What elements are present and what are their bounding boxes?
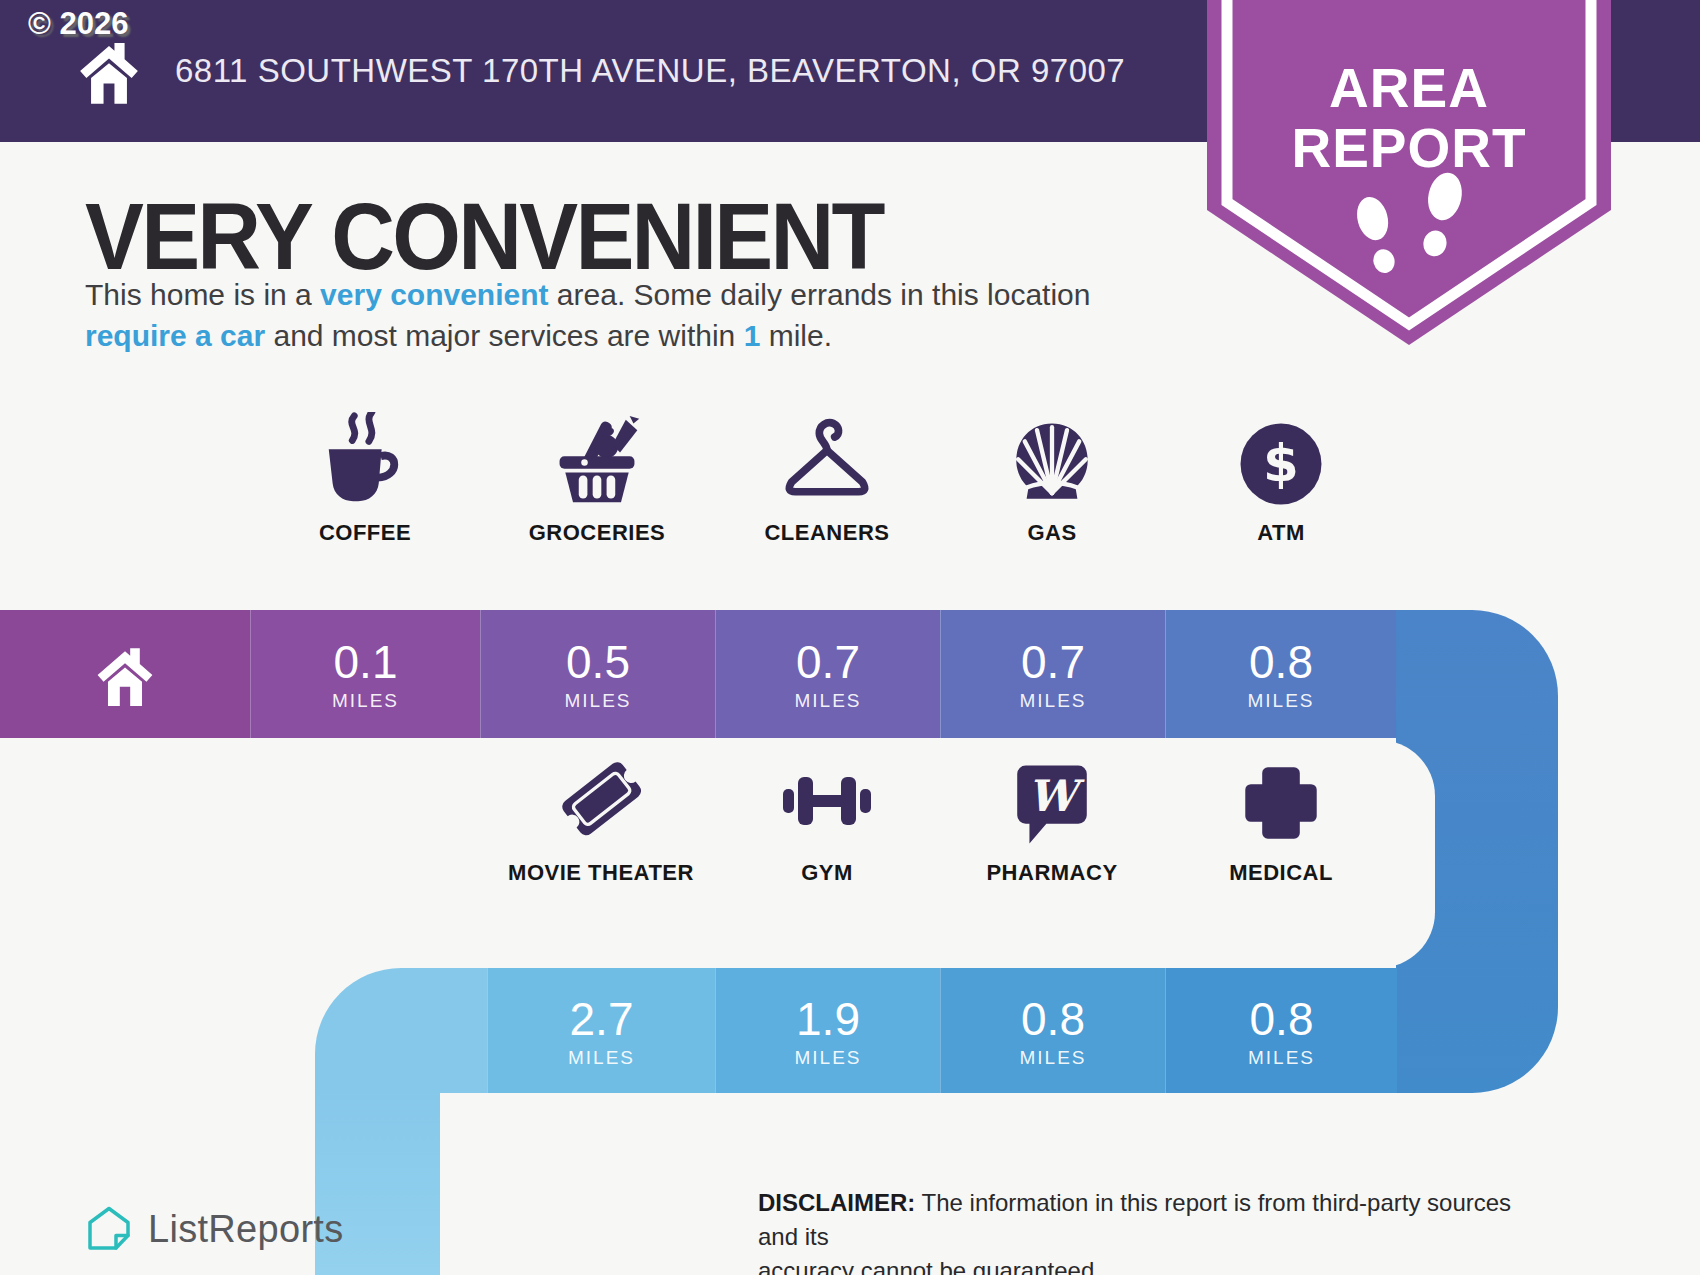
svg-text:$: $ [1263,433,1299,493]
svg-text:W: W [1028,770,1085,821]
area-report-badge: AREA REPORT [1207,0,1611,348]
home-segment [0,610,250,738]
distance-segment-movie-theater: 2.7MILES [487,968,715,1093]
poi-coffee: COFFEE [245,402,485,546]
highlight-very-convenient: very convenient [320,278,548,311]
poi-label: COFFEE [319,520,411,546]
dumbbell-icon [777,742,877,850]
poi-gas: GAS [932,402,1172,546]
distance-segment-coffee: 0.1MILES [250,610,480,738]
poi-label: ATM [1257,520,1305,546]
distance-bar-row2: 2.7MILES 1.9MILES 0.8MILES 0.8MILES [315,968,1558,1093]
turn-segment [315,968,487,1093]
poi-label: GAS [1027,520,1076,546]
poi-label: GYM [801,860,853,886]
highlight-require-a-car: require a car [85,319,265,352]
distance-bar-row1: 0.1MILES 0.5MILES 0.7MILES 0.7MILES 0.8M… [0,610,1396,738]
poi-label: MOVIE THEATER [508,860,694,886]
distance-segment-groceries: 0.5MILES [480,610,715,738]
walkability-description: This home is in a very convenient area. … [85,274,1115,356]
poi-groceries: GROCERIES [477,402,717,546]
property-address: 6811 SOUTHWEST 170TH AVENUE, BEAVERTON, … [175,0,1125,142]
listreports-logo: ListReports [84,1204,344,1254]
poi-label: GROCERIES [529,520,666,546]
distance-segment-pharmacy: 0.8MILES [940,968,1165,1093]
groceries-icon [549,402,645,510]
walgreens-icon: W [1005,742,1099,850]
distance-segment-gym: 1.9MILES [715,968,940,1093]
copyright-watermark: © 2026 [28,6,128,42]
poi-label: CLEANERS [764,520,889,546]
poi-label: MEDICAL [1229,860,1333,886]
medical-cross-icon [1234,742,1328,850]
highlight-one: 1 [744,319,761,352]
coffee-icon [316,402,414,510]
poi-label: PHARMACY [986,860,1117,886]
poi-atm: $ ATM [1161,402,1401,546]
disclaimer: DISCLAIMER: The information in this repo… [758,1186,1548,1275]
area-report-page: © 2026 6811 SOUTHWEST 170TH AVENUE, BEAV… [0,0,1700,1275]
distance-segment-gas: 0.7MILES [940,610,1165,738]
home-icon [70,30,148,112]
distance-segment-medical: 0.8MILES [1165,968,1397,1093]
shell-icon [1005,402,1099,510]
poi-pharmacy: W PHARMACY [932,742,1172,886]
brand-name: ListReports [148,1208,344,1251]
poi-gym: GYM [707,742,947,886]
distance-segment-cleaners: 0.7MILES [715,610,940,738]
poi-medical: MEDICAL [1161,742,1401,886]
dollar-circle-icon: $ [1235,402,1327,510]
poi-cleaners: CLEANERS [707,402,947,546]
distance-segment-atm: 0.8MILES [1165,610,1396,738]
listreports-house-icon [84,1204,134,1254]
badge-title: AREA REPORT [1207,58,1611,178]
ticket-icon [549,742,653,850]
hanger-icon [779,402,875,510]
